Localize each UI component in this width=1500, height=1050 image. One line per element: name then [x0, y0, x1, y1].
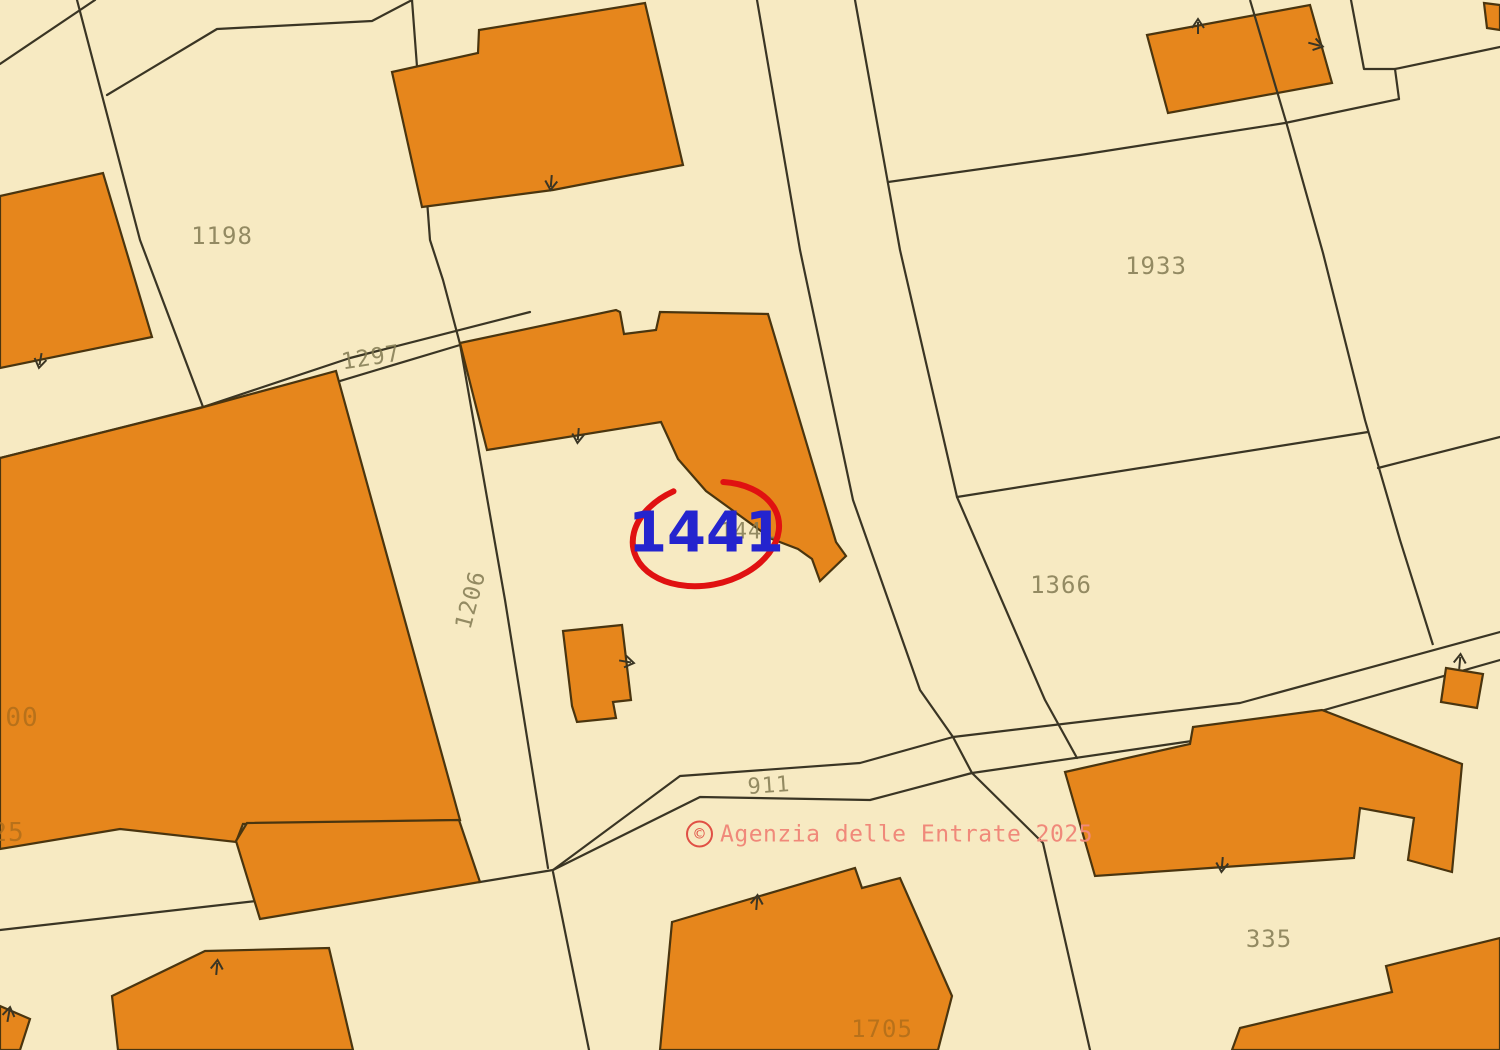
cadastral-map-viewer: 11981297120619331366911335170500251441 ©… [0, 0, 1500, 1050]
building-small-east [1441, 668, 1483, 708]
building-ne-corner [1484, 3, 1500, 30]
map-canvas[interactable] [0, 0, 1500, 1050]
